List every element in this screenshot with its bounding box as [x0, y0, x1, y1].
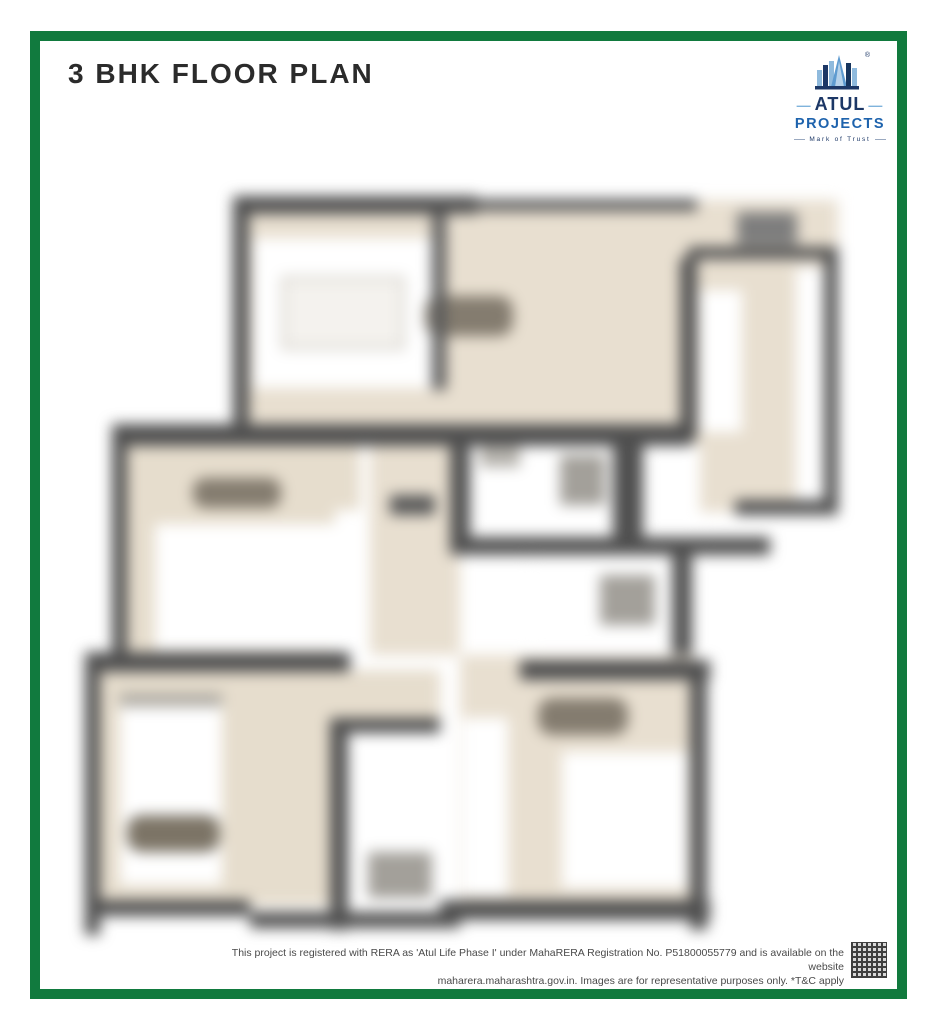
building-skyline-icon: ® [814, 54, 866, 92]
floor-plan-image [70, 180, 870, 942]
atul-projects-logo: ® — ATUL — PROJECTS Mark of Trust [794, 54, 886, 143]
tagline-right-line [875, 139, 886, 140]
logo-left-dash: — [797, 98, 812, 112]
logo-brand-row: — ATUL — [797, 94, 884, 115]
logo-brand-text: ATUL [815, 94, 866, 115]
page-title: 3 BHK FLOOR PLAN [68, 58, 374, 90]
tagline-left-line [794, 139, 805, 140]
logo-right-dash: — [868, 98, 883, 112]
registered-trademark-icon: ® [865, 52, 870, 59]
logo-tagline-row: Mark of Trust [794, 136, 886, 143]
rera-disclaimer-line1: This project is registered with RERA as … [230, 946, 844, 974]
logo-sub-text: PROJECTS [795, 116, 885, 132]
qr-code [851, 942, 887, 978]
rera-disclaimer-line2: maharera.maharashtra.gov.in. Images are … [230, 974, 844, 988]
rera-disclaimer: This project is registered with RERA as … [230, 946, 844, 988]
logo-tagline-text: Mark of Trust [809, 136, 870, 143]
